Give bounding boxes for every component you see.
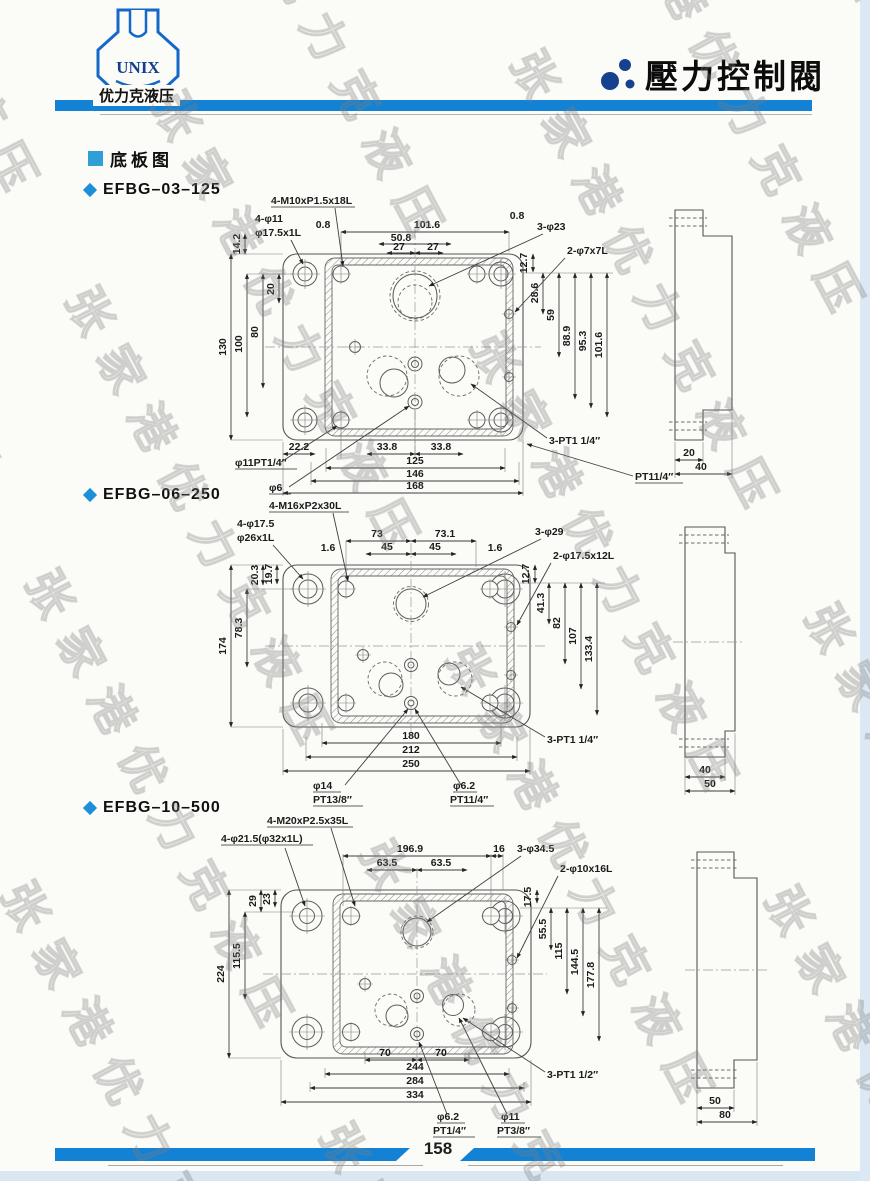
dim-label: 14.2 <box>231 234 243 255</box>
section-title: 底板图 <box>110 146 173 171</box>
dim-label: 78.3 <box>233 618 245 639</box>
dim-label: 45 <box>429 541 441 553</box>
dim-label: 41.3 <box>535 593 547 614</box>
dim-label: 100 <box>233 335 245 353</box>
dim-label: 40 <box>695 461 707 473</box>
page-number: 158 <box>415 1139 461 1159</box>
dim-label: 70 <box>379 1047 391 1059</box>
dim-label: 20.3 <box>249 565 261 586</box>
dim-label: 224 <box>215 965 227 983</box>
dim-label: 17.5 <box>522 887 534 908</box>
dim-label: 174 <box>217 637 229 655</box>
dim-label: 1.6 <box>321 542 336 554</box>
footer-bar-left <box>55 1148 410 1161</box>
dim-label: 12.7 <box>518 253 530 274</box>
dim-label: 244 <box>406 1061 424 1073</box>
dim-label: 88.9 <box>561 326 573 347</box>
dim-label: 22.2 <box>289 441 310 453</box>
leader-label: PT1/4″ <box>433 1125 466 1137</box>
square-bullet-icon <box>88 151 103 166</box>
leader-label: 3-PT1 1/4″ <box>547 734 598 746</box>
footer-bar-right <box>460 1148 815 1161</box>
plan-view <box>263 868 547 1070</box>
dim-label: 95.3 <box>577 331 589 352</box>
dim-label: 196.9 <box>397 843 423 855</box>
model-header-efbg-06-250: EFBG–06–250 <box>85 486 221 504</box>
dim-label: 59 <box>545 309 557 321</box>
dim-label: 73 <box>371 528 383 540</box>
dim-label: 23 <box>261 893 273 905</box>
page-title: 壓力控制閥 <box>645 50 825 98</box>
leader-label: φ6 <box>269 482 283 494</box>
dim-label: 133.4 <box>583 636 595 662</box>
brand-subtitle: 优力克液压 <box>93 85 180 106</box>
dim-label: 80 <box>249 326 261 338</box>
header-underline <box>100 114 812 115</box>
leader-label: PT13/8″ <box>313 794 352 806</box>
side-view: 40 50 <box>673 527 745 795</box>
diamond-bullet-icon <box>83 801 97 815</box>
dim-label: 27 <box>427 241 439 253</box>
dim-label: 284 <box>406 1075 424 1087</box>
dim-label: 20 <box>265 283 277 295</box>
leader-label: φ6.2 <box>453 780 475 792</box>
dim-label: 73.1 <box>435 528 456 540</box>
right-edge-strip <box>860 0 870 1181</box>
leader-label: 4-M20xP2.5x35L <box>267 815 349 827</box>
drawing-efbg-06-250: 73 73.1 1.6 45 45 1.6 4-M16xP2x30L 4-φ17… <box>215 497 815 805</box>
plan-view <box>265 230 541 454</box>
leader-label: 3-φ29 <box>535 526 564 538</box>
dim-label: 19.7 <box>263 564 275 585</box>
dim-label: 12.7 <box>520 564 532 585</box>
leader-label: 3-PT1 1/2″ <box>547 1069 598 1081</box>
leader-label: PT11/4″ <box>635 471 673 483</box>
model-header-efbg-10-500: EFBG–10–500 <box>85 799 221 817</box>
bottom-edge-strip <box>0 1171 870 1181</box>
title-dots-icon <box>598 55 640 95</box>
leader-label: PT3/8″ <box>497 1125 530 1137</box>
dim-label: 33.8 <box>431 441 452 453</box>
dim-label: 115.5 <box>231 943 243 969</box>
dim-label: 27 <box>393 241 405 253</box>
dim-label: 168 <box>406 480 424 492</box>
dim-label: 1.6 <box>488 542 503 554</box>
dim-label: 55.5 <box>537 919 549 940</box>
dim-label: 20 <box>683 447 695 459</box>
section-header: 底板图 <box>88 146 173 171</box>
dim-label: 29 <box>247 895 259 907</box>
side-view: 20 40 <box>669 210 732 478</box>
footer-line-left <box>108 1165 423 1166</box>
dim-label: 101.6 <box>414 219 440 231</box>
leader-label: 3-φ34.5 <box>517 843 554 855</box>
dim-label: 16 <box>493 843 505 855</box>
dim-label: 115 <box>553 942 565 959</box>
leader-label: φ17.5x1L <box>255 227 302 239</box>
leader-label: φ6.2 <box>437 1111 459 1123</box>
dim-label: 0.8 <box>510 210 525 222</box>
leader-label: φ26x1L <box>237 532 275 544</box>
model-name: EFBG–06–250 <box>103 486 221 504</box>
leader-label: 4-φ11 <box>255 213 283 225</box>
leader-label: PT11/4″ <box>450 794 488 806</box>
dim-label: 180 <box>402 730 420 742</box>
dim-label: 250 <box>402 758 420 770</box>
diamond-bullet-icon <box>83 183 97 197</box>
leader-label: 4-φ17.5 <box>237 518 274 530</box>
diamond-bullet-icon <box>83 488 97 502</box>
leader-label: φ14 <box>313 780 332 792</box>
dim-label: 0.8 <box>316 219 331 231</box>
dim-label: 40 <box>699 764 711 776</box>
leader-label: φ11PT1/4″ <box>235 457 287 469</box>
dim-label: 80 <box>719 1109 731 1121</box>
leader-label: 4-M16xP2x30L <box>269 500 342 512</box>
leader-label: 4-M10xP1.5x18L <box>271 195 353 207</box>
model-name: EFBG–03–125 <box>103 181 221 199</box>
leader-label: 2-φ17.5x12L <box>553 550 615 562</box>
dim-label: 82 <box>551 617 563 629</box>
leader-label: 3-φ23 <box>537 221 566 233</box>
side-view: 50 80 <box>685 852 767 1126</box>
dim-label: 50 <box>704 778 716 790</box>
leader-label: φ11 <box>501 1111 520 1123</box>
leader-label: 2-φ10x16L <box>560 863 613 875</box>
dim-label: 63.5 <box>431 857 452 869</box>
model-header-efbg-03-125: EFBG–03–125 <box>85 181 221 199</box>
dim-label: 45 <box>381 541 393 553</box>
dim-label: 107 <box>567 627 579 645</box>
drawing-efbg-10-500: 196.9 16 3-φ34.5 63.5 63.5 4-M20xP2.5x35… <box>215 812 835 1142</box>
dim-label: 212 <box>402 744 420 756</box>
dim-label: 177.8 <box>585 962 597 988</box>
dim-label: 28.6 <box>529 283 541 304</box>
dim-label: 144.5 <box>569 949 581 975</box>
dim-label: 125 <box>406 455 424 467</box>
model-name: EFBG–10–500 <box>103 799 221 817</box>
dim-label: 101.6 <box>593 332 605 358</box>
dim-label: 33.8 <box>377 441 398 453</box>
dim-label: 130 <box>217 338 229 356</box>
dim-label: 146 <box>406 468 424 480</box>
leader-label: 2-φ7x7L <box>567 245 608 257</box>
drawing-efbg-03-125: 0.8 101.6 0.8 50.8 27 27 4-M10xP1.5x18L … <box>215 192 815 502</box>
footer-line-right <box>468 1165 783 1166</box>
leader-label: 3-PT1 1/4″ <box>549 435 600 447</box>
dim-label: 50 <box>709 1095 721 1107</box>
dim-label: 334 <box>406 1089 424 1101</box>
dim-label: 70 <box>435 1047 447 1059</box>
logo-text: UNIX <box>116 58 160 77</box>
leader-label: 4-φ21.5(φ32x1L) <box>221 833 303 845</box>
dim-label: 63.5 <box>377 857 398 869</box>
